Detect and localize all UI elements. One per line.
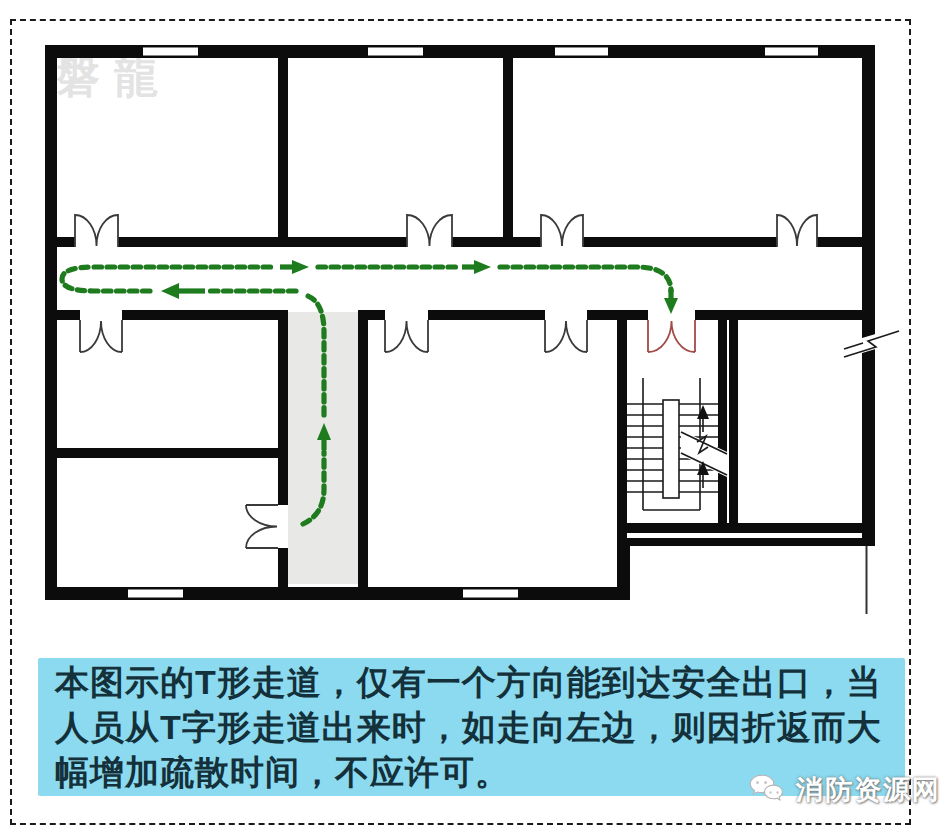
floor-plan: [0, 0, 941, 648]
watermark-bottom-label: 消防资源网: [796, 772, 941, 808]
double-swing-door-icon: [80, 320, 122, 352]
exit-door-icon: [648, 320, 695, 352]
caption-line-1: 本图示的T形走道，仅有一个方向能到达安全出口，当: [38, 660, 905, 705]
double-swing-door-icon: [246, 505, 278, 548]
windows: [128, 48, 818, 598]
arrow-right-icon: [462, 260, 491, 274]
stair-landing-rail: [663, 400, 679, 498]
walls: [45, 45, 875, 614]
staircase: [627, 378, 727, 510]
double-swing-door-icon: [407, 215, 452, 247]
wechat-icon: [748, 772, 790, 808]
watermark-bottom-right: 消防资源网: [748, 772, 941, 808]
double-swing-door-icon: [777, 215, 817, 247]
caption-line-2: 人员从T字形走道出来时，如走向左边，则因折返而大: [38, 705, 905, 750]
arrow-down-icon: [664, 289, 678, 314]
double-swing-door-icon: [75, 215, 118, 247]
arrow-right-icon: [280, 260, 309, 274]
double-swing-door-icon: [385, 320, 428, 352]
arrow-left-icon: [161, 283, 205, 299]
double-swing-door-icon: [541, 215, 583, 247]
double-swing-door-icon: [545, 320, 587, 352]
evacuation-route: [62, 260, 678, 524]
